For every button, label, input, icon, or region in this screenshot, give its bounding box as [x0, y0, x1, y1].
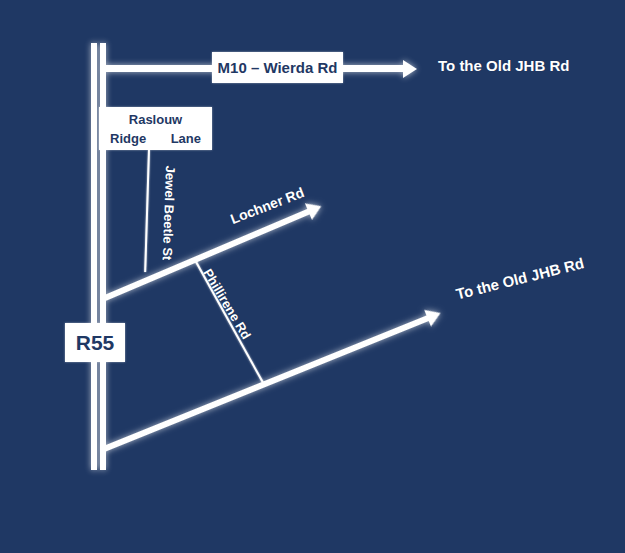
raslouw-sign-lane-label: Lane: [171, 129, 201, 148]
old-jhb-road-label-top: To the Old JHB Rd: [438, 57, 569, 74]
m10-road-sign-label: M10 – Wierda Rd: [218, 59, 338, 76]
r55-sign-label: R55: [76, 331, 115, 355]
r55-road-stripe-left: [91, 43, 97, 470]
old-jhb-road: [103, 315, 430, 452]
raslouw-sign-line2: Ridge Lane: [99, 129, 212, 148]
phillirene-road-label: Phillirene Rd: [200, 266, 254, 342]
r55-sign: R55: [65, 323, 125, 362]
jewel-beetle-street-line: [144, 150, 150, 272]
raslouw-sign-ridge-label: Ridge: [110, 129, 146, 148]
map-canvas: M10 – Wierda Rd Raslouw Ridge Lane R55 T…: [0, 0, 625, 553]
jewel-beetle-street-label: Jewel Beetle St: [160, 165, 178, 260]
old-jhb-arrowhead-icon: [424, 305, 444, 327]
lochner-arrowhead-icon: [305, 198, 325, 220]
m10-arrowhead-icon: [403, 60, 417, 78]
old-jhb-road-label-diagonal: To the Old JHB Rd: [454, 254, 586, 302]
m10-road-sign: M10 – Wierda Rd: [212, 52, 343, 83]
raslouw-sign-line1: Raslouw: [129, 110, 182, 129]
raslouw-ridge-lane-sign: Raslouw Ridge Lane: [99, 107, 212, 150]
